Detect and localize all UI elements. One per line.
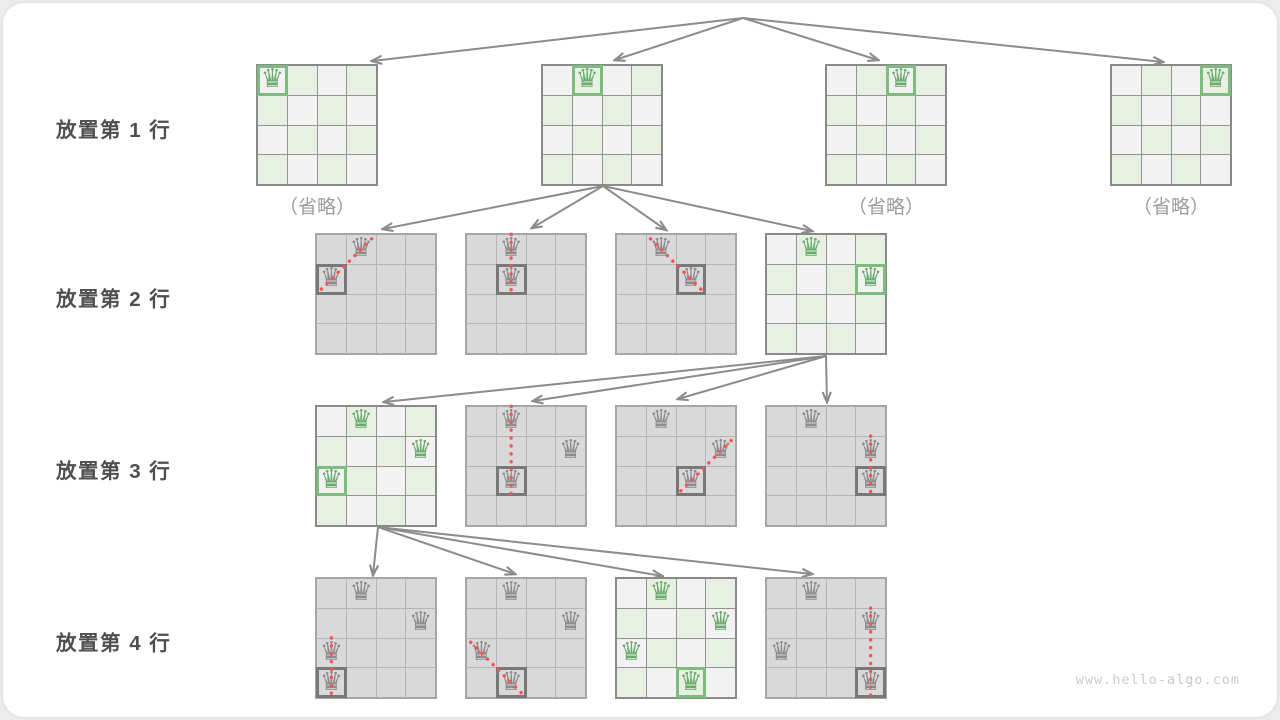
queen-icon: ♛	[679, 265, 702, 291]
board-cell	[767, 265, 796, 294]
board-cell	[377, 437, 406, 466]
board-cell	[827, 496, 856, 525]
board-cell	[706, 496, 735, 525]
board-cell	[467, 467, 496, 496]
board-cell	[467, 668, 496, 697]
board-cell	[556, 496, 585, 525]
board-cell	[1142, 96, 1171, 125]
board-cell	[347, 295, 376, 324]
board-cell: ♛	[647, 407, 676, 436]
board-cell	[827, 235, 856, 264]
tree-edge	[384, 356, 826, 402]
board-cell: ♛	[856, 437, 885, 466]
board-cell	[573, 155, 602, 184]
board-cell	[1172, 155, 1201, 184]
board-cell	[827, 324, 856, 353]
queen-icon: ♛	[320, 265, 343, 291]
board-cell	[856, 579, 885, 608]
board-cell	[677, 579, 706, 608]
queen-icon: ♛	[559, 609, 582, 635]
board-cell: ♛	[706, 437, 735, 466]
board-cell	[916, 155, 945, 184]
board-cell	[617, 609, 646, 638]
board-cell	[497, 324, 526, 353]
board-cell	[527, 668, 556, 697]
board-cell	[556, 295, 585, 324]
board-cell	[647, 639, 676, 668]
board-cell	[1142, 66, 1171, 95]
queen-icon: ♛	[709, 609, 732, 635]
board-cell: ♛	[347, 235, 376, 264]
board-cell: ♛	[497, 407, 526, 436]
board-cell: ♛	[856, 609, 885, 638]
board-cell	[377, 639, 406, 668]
board-cell	[706, 639, 735, 668]
board-cell	[857, 96, 886, 125]
queen-icon: ♛	[649, 407, 672, 433]
queen-icon: ♛	[349, 579, 372, 605]
board-cell	[617, 407, 646, 436]
board-cell	[706, 235, 735, 264]
board-cell: ♛	[856, 668, 885, 697]
board-cell	[603, 126, 632, 155]
board-r1b1: ♛	[256, 64, 378, 186]
board-cell	[527, 295, 556, 324]
board-r1b3: ♛	[825, 64, 947, 186]
board-cell	[317, 579, 346, 608]
board-cell: ♛	[317, 639, 346, 668]
board-cell	[317, 295, 346, 324]
board-cell	[856, 324, 885, 353]
board-cell	[556, 579, 585, 608]
board-cell: ♛	[497, 467, 526, 496]
board-cell	[827, 155, 856, 184]
board-cell	[617, 295, 646, 324]
board-cell	[827, 66, 856, 95]
board-cell	[767, 324, 796, 353]
board-cell: ♛	[677, 265, 706, 294]
board-cell	[706, 467, 735, 496]
board-cell: ♛	[467, 639, 496, 668]
board-cell	[916, 96, 945, 125]
board-cell	[556, 467, 585, 496]
board-cell	[377, 609, 406, 638]
board-cell	[797, 265, 826, 294]
board-cell	[497, 437, 526, 466]
board-cell	[318, 66, 347, 95]
queen-icon: ♛	[320, 467, 343, 493]
board-cell: ♛	[556, 609, 585, 638]
row-label-4: 放置第 4 行	[56, 626, 206, 656]
board-cell	[797, 324, 826, 353]
queen-icon: ♛	[649, 235, 672, 261]
board-cell	[767, 579, 796, 608]
board-cell: ♛	[617, 639, 646, 668]
board-cell	[916, 66, 945, 95]
board-cell	[827, 96, 856, 125]
queen-icon: ♛	[261, 66, 284, 92]
diagram-canvas: 放置第 1 行 放置第 2 行 放置第 3 行 放置第 4 行 ♛（省略）♛♛（…	[0, 0, 1280, 720]
board-cell	[1112, 66, 1141, 95]
tree-edge	[615, 18, 743, 60]
board-cell	[527, 609, 556, 638]
board-cell	[406, 668, 435, 697]
board-cell	[827, 609, 856, 638]
board-cell	[497, 639, 526, 668]
board-cell	[406, 639, 435, 668]
board-cell	[1201, 126, 1230, 155]
board-cell	[377, 467, 406, 496]
board-cell: ♛	[317, 668, 346, 697]
board-cell	[347, 324, 376, 353]
board-cell	[1201, 155, 1230, 184]
board-cell	[827, 437, 856, 466]
tree-edge	[826, 356, 827, 402]
board-cell	[677, 496, 706, 525]
board-cell	[347, 126, 376, 155]
queen-icon: ♛	[709, 437, 732, 463]
board-cell	[856, 407, 885, 436]
board-cell: ♛	[556, 437, 585, 466]
board-cell	[406, 407, 435, 436]
row-label-3: 放置第 3 行	[56, 454, 206, 484]
board-cell: ♛	[797, 579, 826, 608]
board-cell	[288, 126, 317, 155]
board-cell	[856, 295, 885, 324]
board-cell	[288, 66, 317, 95]
queen-icon: ♛	[620, 639, 643, 665]
board-cell: ♛	[797, 407, 826, 436]
board-cell: ♛	[1201, 66, 1230, 95]
queen-icon: ♛	[649, 579, 672, 605]
queen-icon: ♛	[499, 579, 522, 605]
board-cell	[677, 639, 706, 668]
board-cell	[377, 668, 406, 697]
queen-icon: ♛	[409, 437, 432, 463]
queen-icon: ♛	[575, 66, 598, 92]
board-r4b3: ♛♛♛♛	[615, 577, 737, 699]
board-cell: ♛	[797, 235, 826, 264]
board-r2b1: ♛♛	[315, 233, 437, 355]
board-cell	[377, 265, 406, 294]
board-r3b4: ♛♛♛	[765, 405, 887, 527]
queen-icon: ♛	[499, 407, 522, 433]
tree-edge	[378, 527, 515, 574]
board-cell	[497, 496, 526, 525]
queen-icon: ♛	[1204, 66, 1227, 92]
board-cell	[677, 324, 706, 353]
queen-icon: ♛	[799, 407, 822, 433]
queen-icon: ♛	[859, 609, 882, 635]
board-cell	[647, 668, 676, 697]
board-cell	[527, 579, 556, 608]
tree-edge	[603, 186, 666, 230]
board-cell	[827, 407, 856, 436]
board-cell	[527, 324, 556, 353]
board-cell: ♛	[258, 66, 287, 95]
board-cell	[797, 496, 826, 525]
board-cell	[467, 295, 496, 324]
board-cell	[647, 295, 676, 324]
board-cell	[797, 668, 826, 697]
tree-edge	[603, 186, 812, 231]
board-cell	[632, 155, 661, 184]
board-cell	[347, 66, 376, 95]
queen-icon: ♛	[499, 265, 522, 291]
omitted-caption: （省略）	[1110, 192, 1232, 219]
board-cell	[647, 437, 676, 466]
board-cell	[467, 265, 496, 294]
board-cell	[1172, 126, 1201, 155]
queen-icon: ♛	[859, 467, 882, 493]
board-cell	[617, 324, 646, 353]
board-cell: ♛	[677, 467, 706, 496]
board-cell	[543, 126, 572, 155]
board-cell	[797, 639, 826, 668]
board-cell	[887, 126, 916, 155]
board-cell	[377, 295, 406, 324]
board-cell	[556, 639, 585, 668]
board-r4b1: ♛♛♛♛	[315, 577, 437, 699]
tree-edge	[378, 527, 812, 574]
board-r2b2: ♛♛	[465, 233, 587, 355]
board-cell: ♛	[497, 668, 526, 697]
board-cell	[497, 295, 526, 324]
board-cell	[527, 467, 556, 496]
board-cell	[617, 235, 646, 264]
board-cell	[677, 609, 706, 638]
queen-icon: ♛	[499, 235, 522, 261]
board-r1b2: ♛	[541, 64, 663, 186]
queen-icon: ♛	[349, 235, 372, 261]
board-cell	[406, 496, 435, 525]
board-cell	[318, 96, 347, 125]
board-cell: ♛	[706, 609, 735, 638]
board-cell	[1172, 96, 1201, 125]
board-cell	[767, 407, 796, 436]
queen-icon: ♛	[799, 579, 822, 605]
board-cell	[527, 437, 556, 466]
board-cell	[556, 668, 585, 697]
board-cell	[318, 155, 347, 184]
board-cell	[767, 437, 796, 466]
board-cell	[767, 496, 796, 525]
tree-edge	[743, 18, 878, 60]
board-cell: ♛	[347, 407, 376, 436]
board-cell	[603, 96, 632, 125]
board-cell	[632, 126, 661, 155]
board-cell: ♛	[573, 66, 602, 95]
board-cell	[797, 295, 826, 324]
board-cell: ♛	[406, 609, 435, 638]
board-cell	[827, 265, 856, 294]
board-cell	[767, 295, 796, 324]
board-cell	[603, 155, 632, 184]
board-cell	[347, 437, 376, 466]
board-r3b2: ♛♛♛	[465, 405, 587, 527]
board-cell	[317, 437, 346, 466]
queen-icon: ♛	[889, 66, 912, 92]
board-cell	[767, 609, 796, 638]
board-cell	[767, 668, 796, 697]
board-cell	[706, 265, 735, 294]
board-cell	[617, 496, 646, 525]
board-cell	[767, 235, 796, 264]
board-cell: ♛	[647, 235, 676, 264]
tree-edge	[743, 18, 1163, 62]
board-cell	[647, 324, 676, 353]
board-cell	[467, 609, 496, 638]
board-cell	[377, 235, 406, 264]
board-cell	[632, 66, 661, 95]
board-cell	[406, 324, 435, 353]
board-cell	[497, 609, 526, 638]
board-cell	[647, 467, 676, 496]
board-cell	[258, 126, 287, 155]
board-cell	[856, 639, 885, 668]
queen-icon: ♛	[859, 265, 882, 291]
queen-icon: ♛	[499, 669, 522, 695]
board-cell	[797, 467, 826, 496]
queen-icon: ♛	[859, 437, 882, 463]
row-label-2: 放置第 2 行	[56, 282, 206, 312]
board-cell	[632, 96, 661, 125]
board-cell	[556, 265, 585, 294]
board-cell	[527, 235, 556, 264]
board-cell	[856, 496, 885, 525]
board-cell	[573, 96, 602, 125]
tree-edge	[378, 527, 662, 576]
board-cell	[603, 66, 632, 95]
board-cell: ♛	[317, 265, 346, 294]
board-cell	[857, 126, 886, 155]
board-cell	[797, 609, 826, 638]
tree-edge	[533, 356, 826, 401]
board-cell	[573, 126, 602, 155]
board-cell	[827, 579, 856, 608]
queen-icon: ♛	[559, 437, 582, 463]
board-cell	[543, 155, 572, 184]
board-cell	[317, 324, 346, 353]
board-cell	[543, 66, 572, 95]
queen-icon: ♛	[349, 407, 372, 433]
board-cell	[317, 235, 346, 264]
board-cell	[767, 467, 796, 496]
board-cell: ♛	[856, 265, 885, 294]
board-cell	[916, 126, 945, 155]
board-cell	[827, 639, 856, 668]
board-r3b1: ♛♛♛	[315, 405, 437, 527]
board-cell	[406, 265, 435, 294]
board-cell	[377, 324, 406, 353]
board-cell	[827, 467, 856, 496]
board-cell	[467, 579, 496, 608]
board-cell	[647, 265, 676, 294]
board-cell	[406, 295, 435, 324]
board-cell: ♛	[856, 467, 885, 496]
tree-edge	[383, 186, 603, 229]
board-cell	[288, 96, 317, 125]
board-cell: ♛	[677, 668, 706, 697]
board-cell: ♛	[887, 66, 916, 95]
board-cell: ♛	[317, 467, 346, 496]
board-cell	[1112, 126, 1141, 155]
board-cell	[617, 668, 646, 697]
board-cell	[543, 96, 572, 125]
board-cell	[556, 407, 585, 436]
watermark: www.hello-algo.com	[1076, 672, 1240, 688]
board-cell: ♛	[347, 579, 376, 608]
board-cell	[827, 295, 856, 324]
board-cell	[377, 579, 406, 608]
board-cell	[677, 235, 706, 264]
board-cell	[288, 155, 317, 184]
board-cell	[258, 155, 287, 184]
board-cell	[677, 295, 706, 324]
queen-icon: ♛	[679, 467, 702, 493]
board-cell	[827, 668, 856, 697]
board-r2b3: ♛♛	[615, 233, 737, 355]
board-cell	[677, 407, 706, 436]
board-cell	[706, 295, 735, 324]
board-cell: ♛	[406, 437, 435, 466]
board-cell: ♛	[497, 579, 526, 608]
board-cell	[1201, 96, 1230, 125]
board-r4b4: ♛♛♛♛	[765, 577, 887, 699]
board-cell	[527, 265, 556, 294]
queen-icon: ♛	[859, 669, 882, 695]
tree-edge	[372, 18, 743, 61]
tree-edge	[678, 356, 826, 399]
omitted-caption: （省略）	[825, 192, 947, 219]
board-cell	[258, 96, 287, 125]
board-cell	[347, 265, 376, 294]
board-cell	[406, 467, 435, 496]
board-cell	[467, 407, 496, 436]
board-cell	[527, 496, 556, 525]
board-cell: ♛	[497, 265, 526, 294]
board-cell	[647, 496, 676, 525]
board-cell	[706, 668, 735, 697]
queen-icon: ♛	[409, 609, 432, 635]
queen-icon: ♛	[770, 639, 793, 665]
board-cell	[347, 96, 376, 125]
board-cell	[318, 126, 347, 155]
board-cell	[617, 437, 646, 466]
board-cell	[556, 235, 585, 264]
board-r4b2: ♛♛♛♛	[465, 577, 587, 699]
board-cell	[317, 407, 346, 436]
board-cell	[1142, 126, 1171, 155]
board-r2b4: ♛♛	[765, 233, 887, 355]
board-cell	[406, 235, 435, 264]
board-cell	[706, 407, 735, 436]
board-cell	[347, 639, 376, 668]
board-cell	[797, 437, 826, 466]
row-label-1: 放置第 1 行	[56, 113, 206, 143]
board-cell	[1142, 155, 1171, 184]
board-cell	[827, 126, 856, 155]
board-cell	[1172, 66, 1201, 95]
omitted-caption: （省略）	[256, 192, 378, 219]
board-cell	[317, 496, 346, 525]
board-cell	[857, 66, 886, 95]
board-r3b3: ♛♛♛	[615, 405, 737, 527]
tree-edge	[373, 527, 378, 575]
board-r1b4: ♛	[1110, 64, 1232, 186]
queen-icon: ♛	[799, 235, 822, 261]
board-cell	[856, 235, 885, 264]
